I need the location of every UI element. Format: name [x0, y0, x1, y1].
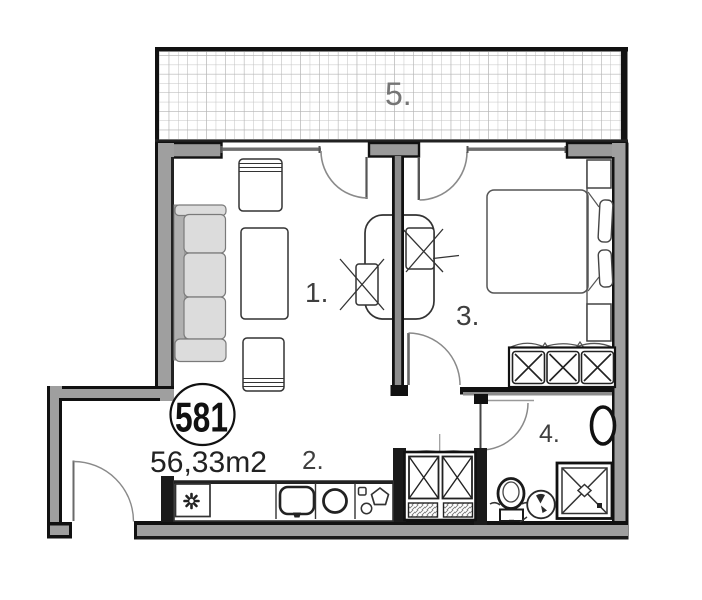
- svg-text:56,33m2: 56,33m2: [150, 446, 267, 479]
- svg-text:1.: 1.: [305, 277, 328, 308]
- svg-text:581: 581: [175, 394, 228, 441]
- svg-text:4.: 4.: [539, 420, 560, 448]
- svg-text:2.: 2.: [302, 445, 324, 475]
- svg-text:3.: 3.: [456, 300, 479, 331]
- svg-text:5.: 5.: [385, 76, 412, 112]
